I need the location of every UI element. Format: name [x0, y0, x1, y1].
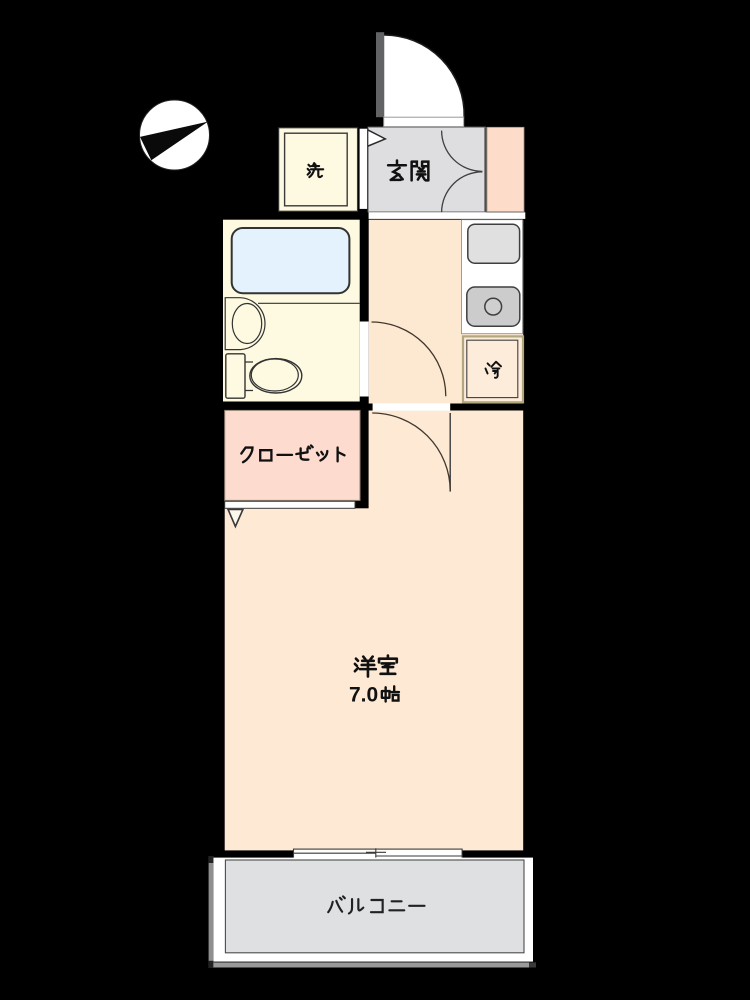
svg-text:7.0: 7.0 [349, 684, 378, 707]
